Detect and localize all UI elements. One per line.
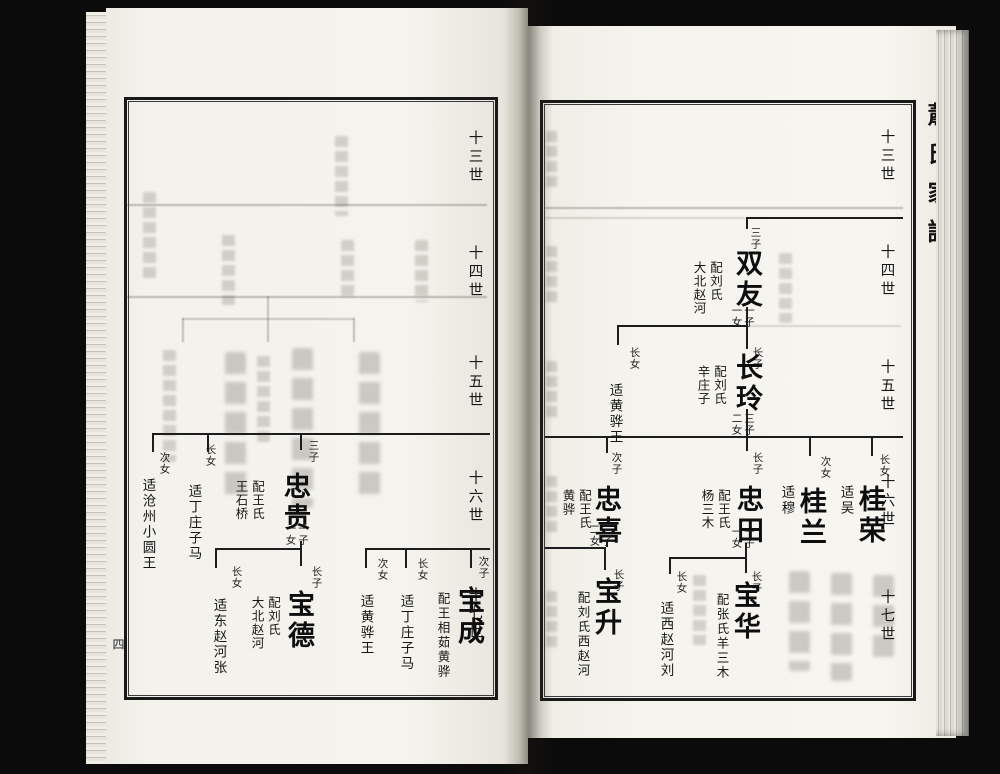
bleed-line — [182, 318, 184, 342]
connector-h — [669, 557, 747, 559]
person-name-baohua: 宝华 — [731, 581, 758, 643]
bleed-text — [335, 136, 348, 216]
daughters-count: 一女 — [730, 305, 741, 328]
birth-order-label: 长子 — [751, 452, 762, 475]
spouse-place: 杨三木 — [699, 489, 713, 530]
spouse-text: 配刘氏 — [712, 365, 726, 406]
person-name-baosheng: 宝升 — [592, 577, 619, 639]
connector-v — [300, 433, 302, 450]
daughter-marriage: 适穆 — [780, 485, 794, 516]
spouse-text: 配王相茹黄骅 — [436, 592, 449, 679]
spouse-place: 辛庄子 — [695, 365, 709, 406]
daughter-marriage: 适丁庄子马 — [399, 594, 413, 672]
daughter-marriage: 适沧州小圆王 — [141, 478, 155, 571]
book-photo: 四 十三世 十四世 十五世 十六世 十七世 — [0, 0, 1000, 774]
spouse-place: 王石桥 — [233, 480, 247, 521]
bleed-text — [225, 352, 246, 500]
bleed-text — [789, 571, 810, 671]
person-name-baocheng: 宝成 — [455, 586, 482, 648]
person-name-guilan: 桂兰 — [797, 487, 824, 549]
bleed-text — [359, 352, 380, 497]
connector-h — [152, 433, 490, 435]
spouse-place: 大北赵河 — [249, 596, 263, 650]
spouse-info: 配王氏 王石桥 — [233, 480, 263, 521]
bleed-line — [353, 318, 355, 342]
sons-count: 二子 — [601, 524, 612, 547]
birth-order-label: 次子 — [477, 556, 488, 579]
daughters-count: 二女 — [588, 524, 599, 547]
generation-label-15: 十五世 — [467, 355, 482, 411]
spouse-info: 配刘氏 大北赵河 — [249, 596, 279, 650]
daughter-marriage: 适丁庄子马 — [187, 484, 201, 562]
bleed-text — [546, 246, 557, 304]
birth-order-label: 长子 — [310, 566, 321, 589]
bleed-line — [127, 204, 487, 206]
generation-label-15: 十五世 — [879, 359, 894, 415]
connector-h — [545, 436, 903, 438]
bleed-text — [779, 253, 792, 323]
bleed-text — [163, 350, 176, 462]
spouse-text: 配刘氏 — [266, 596, 280, 637]
spouse-info: 配刘氏 辛庄子 — [695, 365, 725, 406]
connector-h — [746, 217, 903, 219]
person-name-guirong: 桂荣 — [856, 485, 883, 547]
birth-order-label: 次女 — [376, 558, 387, 581]
spouse-info: 配王氏 黄骅 — [560, 489, 590, 530]
left-page: 四 十三世 十四世 十五世 十六世 十七世 — [106, 8, 528, 764]
spouse-info: 配刘氏 大北赵河 — [691, 261, 721, 315]
birth-order-label: 长女 — [204, 444, 215, 467]
connector-v — [746, 436, 748, 451]
daughter-marriage: 适黄骅王 — [608, 383, 622, 445]
daughter-marriage: 适东赵河张 — [212, 598, 226, 676]
daughters-count: 二女 — [730, 413, 741, 436]
bleed-text — [257, 356, 270, 444]
spouse-place: 黄骅 — [560, 489, 574, 516]
birth-order-label: 次子 — [610, 452, 621, 475]
birth-order-label: 三子 — [749, 227, 760, 250]
bleed-line — [748, 325, 901, 327]
spouse-text: 配王氏 — [250, 480, 264, 521]
spouse-info: 配王氏 杨三木 — [699, 489, 729, 530]
bleed-text — [831, 573, 852, 681]
connector-h — [617, 325, 748, 327]
connector-v — [365, 548, 367, 568]
generation-label-13: 十三世 — [879, 129, 894, 185]
bleed-line — [545, 217, 745, 219]
sons-count: 一子 — [743, 305, 754, 328]
birth-order-label: 次女 — [158, 452, 169, 475]
right-page-edge-stack — [936, 30, 969, 736]
generation-label-14: 十四世 — [879, 244, 894, 300]
generation-label-14: 十四世 — [467, 245, 482, 301]
daughter-marriage: 适黄骅王 — [359, 594, 373, 656]
bleed-text — [546, 591, 557, 649]
connector-v — [405, 548, 407, 568]
generation-label-13: 十三世 — [467, 130, 482, 186]
connector-v — [669, 557, 671, 574]
birth-order-label: 长女 — [230, 566, 241, 589]
bleed-text — [693, 575, 706, 645]
person-name-shuangyou: 双友 — [733, 249, 760, 311]
children-count: 二子 二女 — [588, 524, 611, 547]
children-count: 一子 一女 — [284, 523, 307, 546]
generation-label-16: 十六世 — [467, 470, 482, 526]
birth-order-label: 三子 — [307, 440, 318, 463]
sons-count: 三子 — [743, 413, 754, 436]
daughter-marriage: 适西赵河刘 — [659, 601, 673, 679]
birth-order-label: 长女 — [675, 571, 686, 594]
spouse-text: 配刘氏 — [708, 261, 722, 302]
connector-v — [746, 217, 748, 229]
bleed-line — [545, 207, 903, 209]
birth-order-label: 次女 — [819, 456, 830, 479]
birth-order-label: 长女 — [416, 558, 427, 581]
spouse-text: 配王氏 — [716, 489, 730, 530]
connector-v — [871, 436, 873, 456]
bleed-text — [415, 240, 428, 302]
bleed-text — [546, 476, 557, 534]
sons-count: 一子 — [297, 523, 308, 546]
person-name-baode: 宝德 — [285, 590, 312, 652]
daughters-count: 一女 — [730, 526, 741, 549]
spouse-text: 配张氏羊三木 — [715, 593, 728, 680]
connector-v — [745, 557, 747, 573]
spouse-text: 配刘氏西赵河 — [576, 591, 589, 678]
children-count: 三子 二女 — [730, 413, 753, 436]
connector-v — [300, 548, 302, 566]
daughter-marriage: 适吴 — [839, 485, 853, 516]
bleed-text — [143, 192, 156, 282]
generation-label-17: 十七世 — [879, 589, 894, 645]
bleed-line — [127, 296, 487, 298]
connector-h — [215, 548, 302, 550]
right-page-frame: 十三世 十四世 十五世 十六世 十七世 三 — [540, 100, 916, 701]
person-name-changling: 长玲 — [733, 353, 760, 415]
left-page-frame: 十三世 十四世 十五世 十六世 十七世 三子 忠贵 配王氏 王石桥 — [124, 97, 498, 700]
connector-v — [470, 548, 472, 568]
birth-order-label: 长女 — [878, 454, 889, 477]
children-count: 一子 一女 — [730, 305, 753, 328]
connector-v — [809, 436, 811, 456]
children-count: 一子 一女 — [730, 526, 753, 549]
connector-v — [215, 548, 217, 568]
connector-v — [746, 325, 748, 349]
bleed-text — [546, 361, 557, 419]
bleed-line — [267, 296, 269, 342]
daughters-count: 一女 — [284, 523, 295, 546]
spouse-place: 大北赵河 — [691, 261, 705, 315]
sons-count: 一子 — [743, 526, 754, 549]
birth-order-label: 长女 — [628, 347, 639, 370]
connector-v — [617, 325, 619, 345]
connector-h — [545, 547, 606, 549]
bleed-text — [341, 240, 354, 298]
page-number: 四 — [112, 638, 124, 650]
bleed-text — [546, 131, 557, 189]
connector-v — [604, 547, 606, 570]
bleed-text — [222, 235, 235, 305]
right-page: 蕭氏家譜 十三世 十四世 十五世 十六世 十七世 — [528, 26, 956, 738]
connector-v — [152, 433, 154, 452]
